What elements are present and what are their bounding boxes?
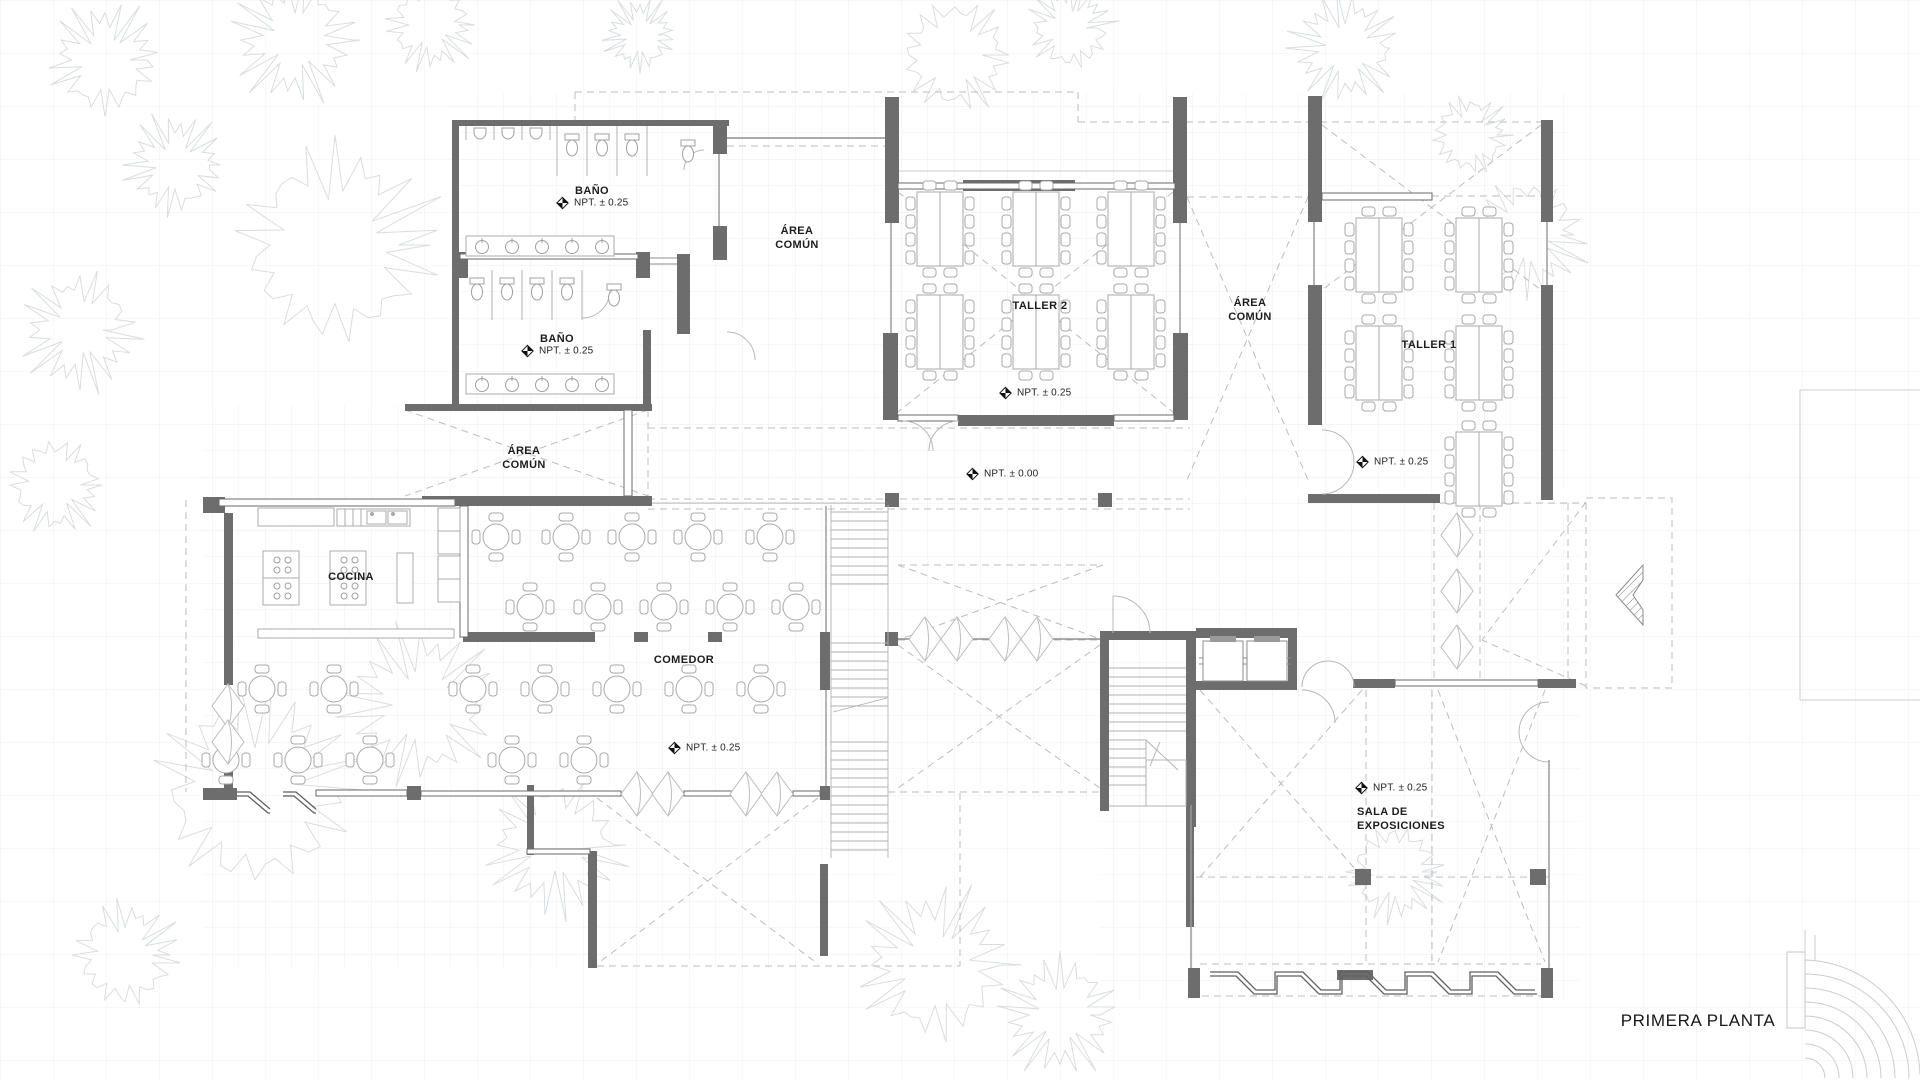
room-label-cocina: COCINA (328, 570, 374, 584)
room-label-area-comun-2: ÁREACOMÚN (1228, 296, 1272, 324)
plan-title: PRIMERA PLANTA (1621, 1011, 1776, 1031)
level-marker-patio: NPT. ± 0.00 (966, 468, 1038, 481)
level-marker-taller2: NPT. ± 0.25 (999, 387, 1071, 400)
level-marker-icon (1355, 782, 1368, 795)
room-label-taller2: TALLER 2 (1013, 299, 1068, 313)
room-label-comedor: COMEDOR (654, 653, 714, 667)
level-marker-comedor: NPT. ± 0.25 (668, 742, 740, 755)
level-marker-icon (521, 345, 534, 358)
room-label-area-comun-3: ÁREACOMÚN (502, 444, 546, 472)
level-marker-bano2: NPT. ± 0.25 (521, 345, 593, 358)
level-marker-icon (1356, 456, 1369, 469)
floor-plan-page: BAÑO NPT. ± 0.25 BAÑO NPT. ± 0.25 ÁREACO… (0, 0, 1920, 1080)
level-marker-icon (668, 742, 681, 755)
room-label-sala: SALA DEEXPOSICIONES (1357, 805, 1445, 833)
level-marker-bano1: NPT. ± 0.25 (556, 197, 628, 210)
level-marker-icon (966, 468, 979, 481)
room-label-taller1: TALLER 1 (1402, 338, 1457, 352)
level-marker-icon (999, 387, 1012, 400)
floor-plan-canvas (0, 0, 1920, 1080)
level-marker-taller1: NPT. ± 0.25 (1356, 456, 1428, 469)
level-marker-sala: NPT. ± 0.25 (1355, 782, 1427, 795)
level-marker-icon (556, 197, 569, 210)
room-label-area-comun-1: ÁREACOMÚN (775, 224, 819, 252)
